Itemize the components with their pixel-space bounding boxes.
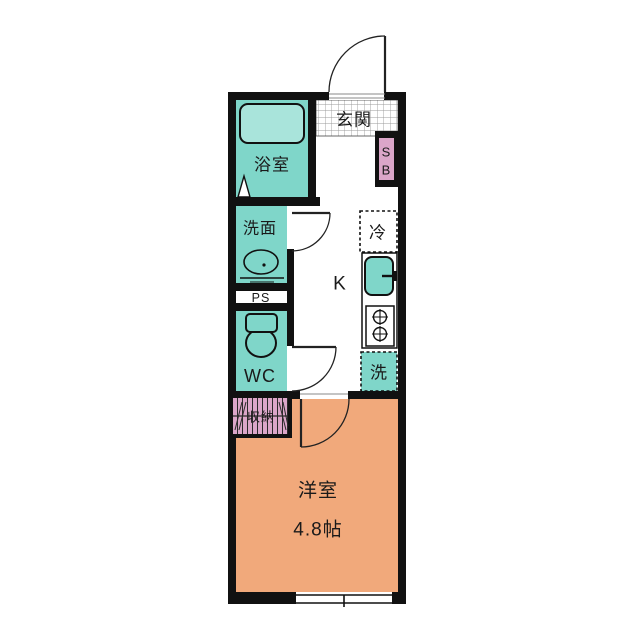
wall-bottom-left (228, 592, 296, 604)
refrigerator-label: 冷 (369, 224, 387, 243)
washroom-label: 洗面 (243, 220, 277, 238)
toilet-bowl-icon (246, 329, 276, 357)
wall-bath-divider (228, 197, 320, 206)
bathroom-label: 浴室 (254, 156, 290, 175)
floorplan: 玄関 浴室 洗面 PS WC K 冷 洗 S B 収納 洋室 4.8帖 (0, 0, 640, 640)
wall-left (228, 92, 236, 604)
western-room-size-label: 4.8帖 (293, 519, 342, 541)
wall-ps-top (234, 283, 290, 291)
bathtub-icon (240, 104, 304, 143)
washbasin-drain-icon (262, 263, 265, 266)
wall-bottom-right (392, 592, 406, 604)
wc-door-swing-arc (292, 347, 336, 391)
shoebox-label-s: S (382, 145, 392, 160)
wall-hall-left (308, 100, 316, 200)
western-room-label: 洋室 (298, 480, 338, 502)
wc-label: WC (244, 366, 276, 386)
washroom-floor (236, 206, 287, 283)
kitchen-label: K (333, 274, 347, 295)
wall-room-divider-right (348, 391, 406, 399)
genkan-label: 玄関 (336, 111, 372, 130)
laundry-label: 洗 (370, 364, 388, 383)
pipe-space-label: PS (252, 291, 271, 305)
toilet-tank-icon (246, 314, 277, 332)
wall-top-left (228, 92, 329, 100)
shoebox-label-b: B (382, 163, 392, 178)
kitchen-faucet-base-icon (392, 271, 397, 281)
entrance-door-swing-arc (329, 36, 385, 92)
wall-washroom-hall (287, 249, 294, 346)
washroom-door-swing-arc (292, 213, 330, 251)
western-room-door-opening (300, 391, 348, 399)
wall-right (398, 92, 406, 604)
storage-label: 収納 (247, 410, 275, 425)
entrance-opening (329, 92, 384, 100)
floorplan-canvas: 玄関 浴室 洗面 PS WC K 冷 洗 S B 収納 洋室 4.8帖 (0, 0, 640, 640)
